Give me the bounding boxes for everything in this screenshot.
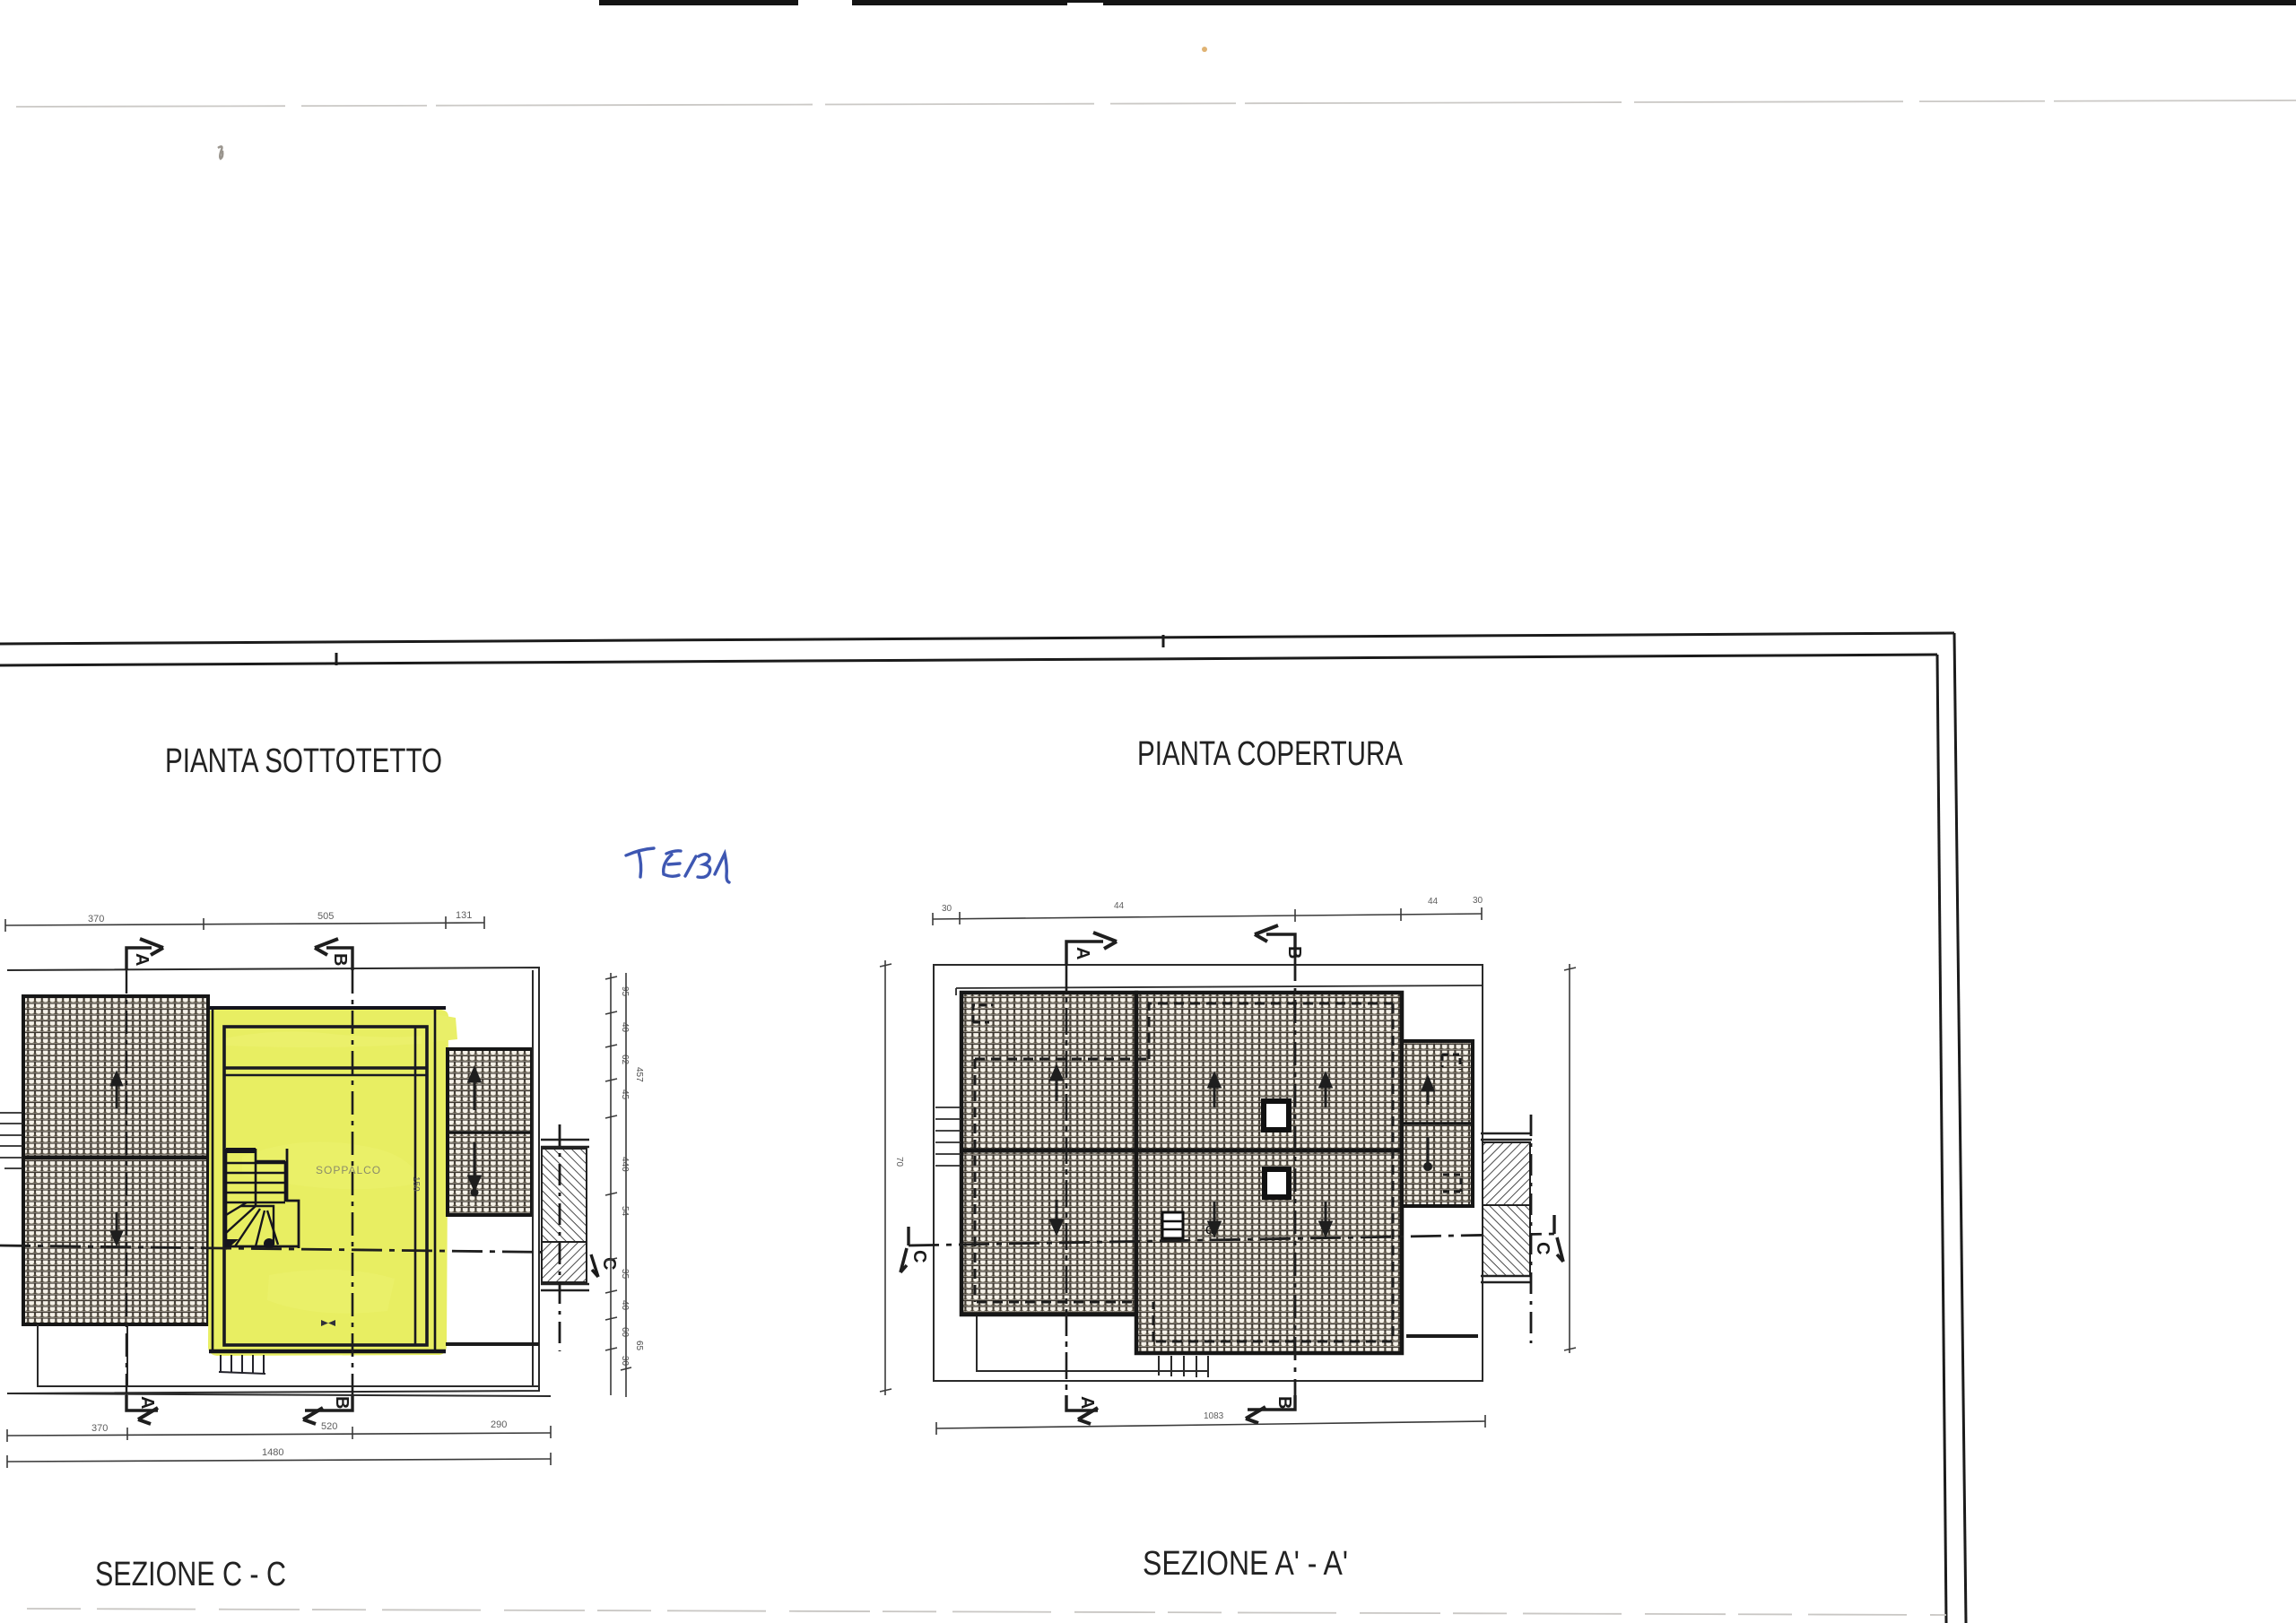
svg-text:A: A xyxy=(1073,947,1092,959)
svg-text:370: 370 xyxy=(88,914,104,924)
svg-text:30: 30 xyxy=(620,1356,630,1367)
svg-text:A: A xyxy=(1077,1396,1097,1409)
svg-text:95: 95 xyxy=(620,986,630,997)
svg-text:1480: 1480 xyxy=(262,1447,283,1458)
svg-text:150: 150 xyxy=(411,1176,421,1192)
svg-text:131: 131 xyxy=(456,910,472,921)
svg-text:B: B xyxy=(330,953,350,966)
svg-text:290: 290 xyxy=(491,1419,507,1430)
svg-text:505: 505 xyxy=(317,911,334,922)
svg-text:SEZIONE C - C: SEZIONE C - C xyxy=(95,1556,286,1593)
svg-text:30: 30 xyxy=(942,904,952,914)
svg-text:54: 54 xyxy=(620,1206,630,1217)
svg-text:PIANTA SOTTOTETTO: PIANTA SOTTOTETTO xyxy=(165,742,442,780)
svg-text:PIANTA COPERTURA: PIANTA COPERTURA xyxy=(1137,735,1404,773)
svg-text:SEZIONE A' - A': SEZIONE A' - A' xyxy=(1143,1545,1348,1583)
svg-text:35: 35 xyxy=(620,1269,630,1280)
svg-text:40: 40 xyxy=(620,1022,630,1033)
svg-text:45: 45 xyxy=(620,1089,630,1100)
svg-text:62: 62 xyxy=(620,1055,630,1065)
svg-text:60: 60 xyxy=(620,1327,630,1338)
svg-text:B: B xyxy=(332,1396,352,1409)
svg-text:C: C xyxy=(909,1250,929,1263)
svg-text:SOPPALCO: SOPPALCO xyxy=(316,1164,381,1176)
svg-text:457: 457 xyxy=(634,1067,644,1082)
svg-text:44: 44 xyxy=(1114,901,1125,911)
svg-text:B: B xyxy=(1284,946,1304,959)
svg-text:520: 520 xyxy=(321,1421,337,1432)
svg-text:40: 40 xyxy=(620,1300,630,1311)
svg-text:65: 65 xyxy=(634,1341,644,1351)
svg-text:C: C xyxy=(1533,1242,1552,1254)
svg-text:B: B xyxy=(1274,1396,1294,1409)
svg-text:44: 44 xyxy=(1428,897,1439,907)
svg-text:C: C xyxy=(599,1257,619,1270)
svg-text:A: A xyxy=(132,953,152,966)
svg-text:440: 440 xyxy=(620,1157,630,1172)
svg-text:A: A xyxy=(137,1396,157,1409)
svg-text:1083: 1083 xyxy=(1204,1411,1224,1421)
svg-text:70: 70 xyxy=(894,1157,904,1167)
svg-text:370: 370 xyxy=(91,1423,108,1434)
svg-text:30: 30 xyxy=(1473,896,1483,906)
